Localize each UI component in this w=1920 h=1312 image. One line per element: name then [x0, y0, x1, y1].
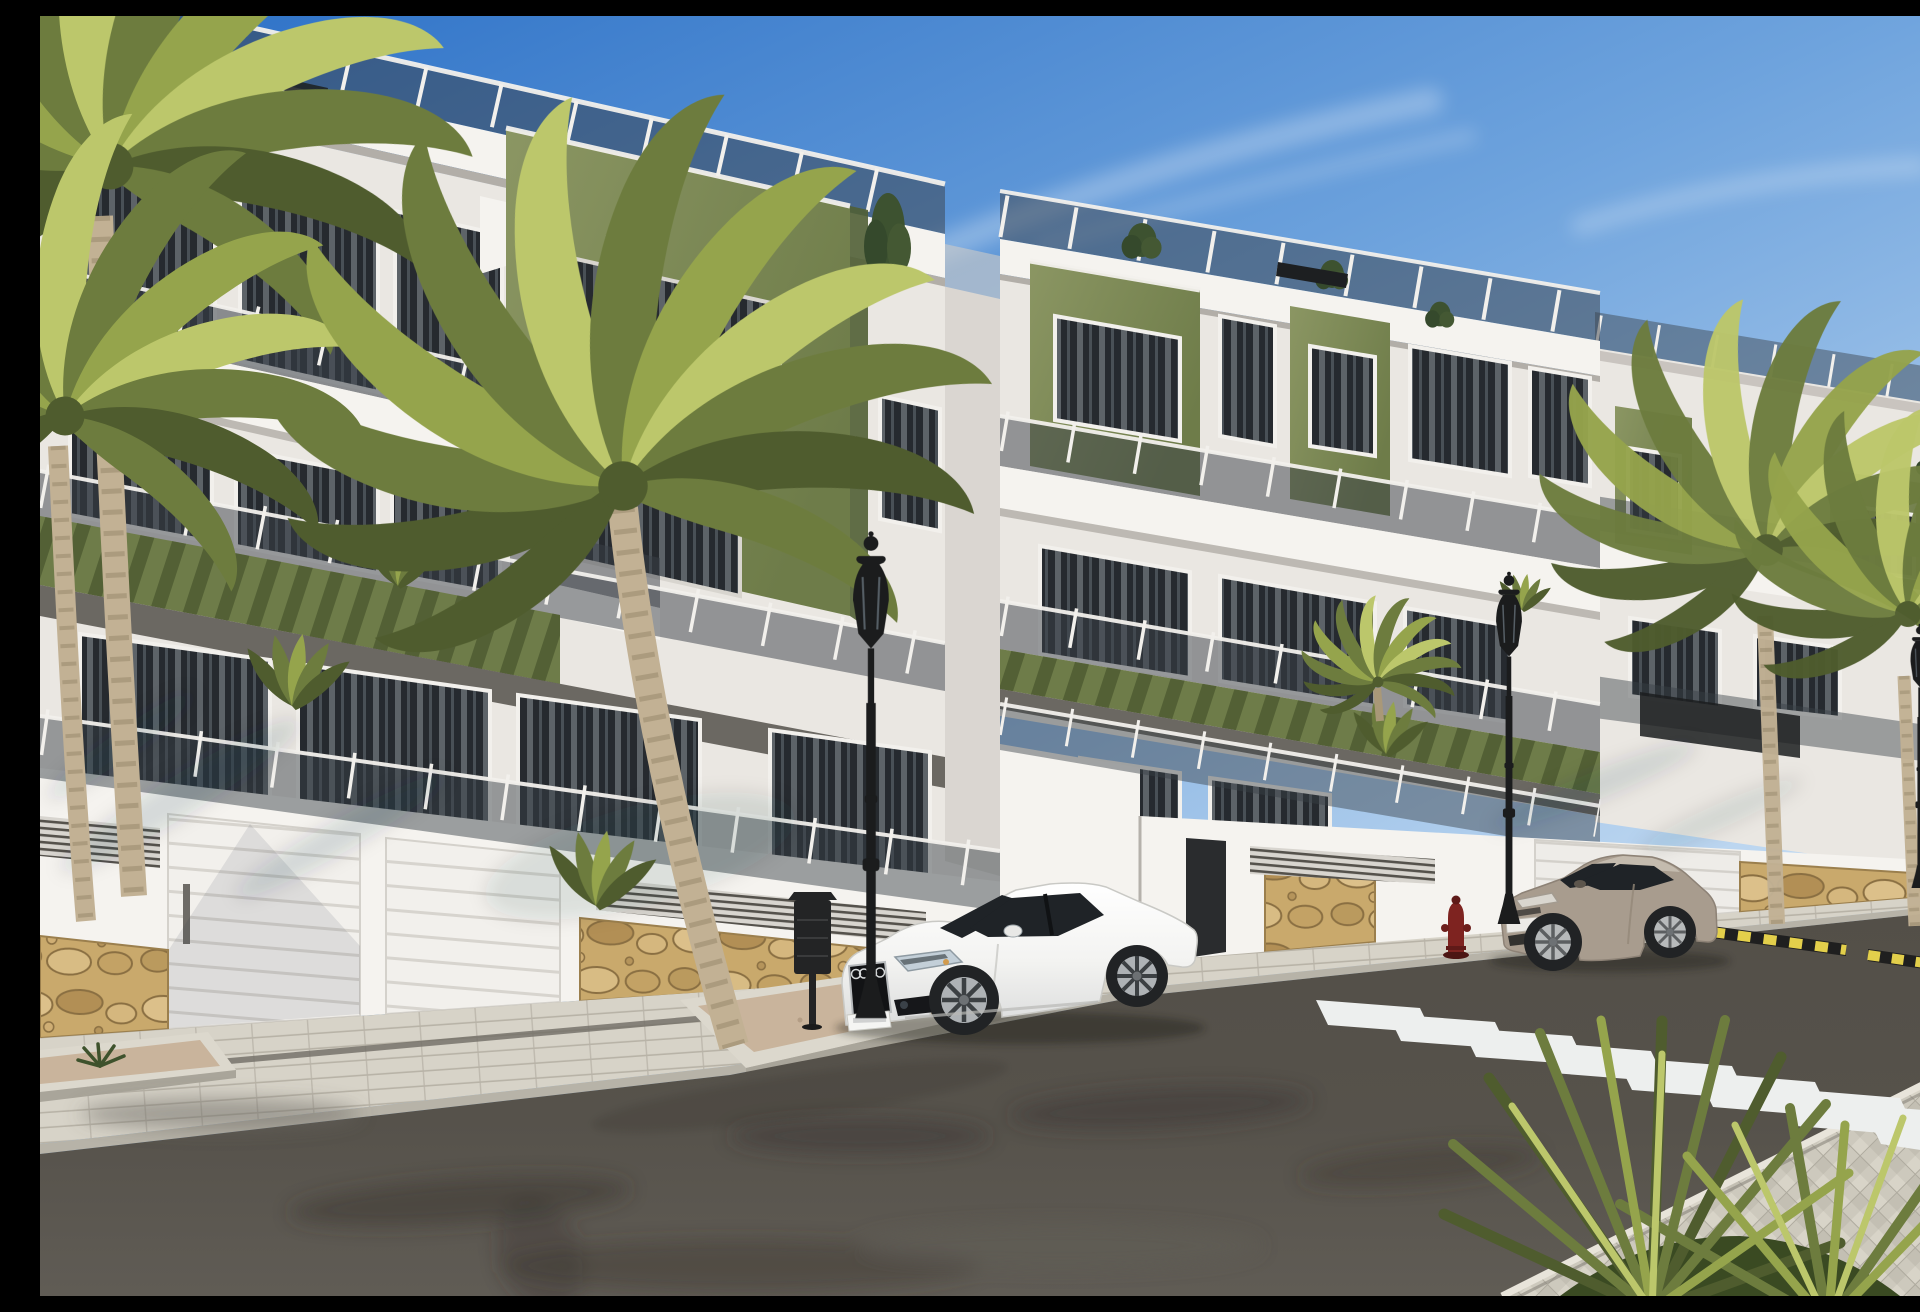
- scene-canvas: [40, 16, 1920, 1296]
- wheel: [1644, 906, 1696, 958]
- wheel: [1524, 913, 1582, 971]
- window: [1055, 316, 1180, 441]
- window: [1410, 346, 1510, 476]
- wheel: [1106, 945, 1168, 1007]
- mirror: [1004, 925, 1022, 937]
- architectural-render: [40, 16, 1920, 1296]
- mirror: [1574, 880, 1586, 888]
- wheel: [929, 965, 999, 1035]
- window: [1310, 346, 1375, 456]
- stone-cladding: [40, 936, 168, 1038]
- window: [1220, 316, 1275, 446]
